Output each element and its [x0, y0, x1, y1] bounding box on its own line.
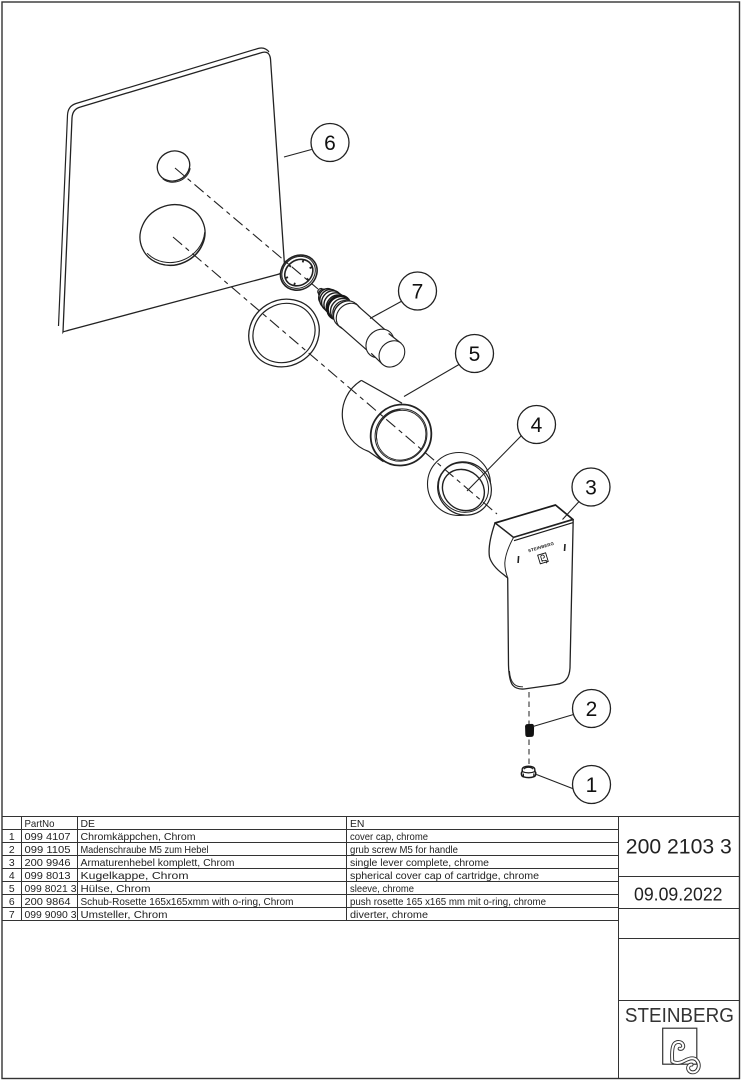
svg-text:EN: EN [350, 819, 364, 830]
svg-text:099 8013: 099 8013 [25, 871, 71, 882]
svg-text:4: 4 [9, 871, 15, 882]
svg-text:Hülse, Chrom: Hülse, Chrom [81, 884, 151, 895]
svg-text:grub screw M5 for handle: grub screw M5 for handle [350, 845, 458, 856]
svg-text:6: 6 [9, 897, 15, 908]
svg-text:1: 1 [586, 774, 598, 797]
svg-text:3: 3 [9, 858, 15, 869]
svg-text:7: 7 [412, 281, 424, 304]
svg-text:099 1105: 099 1105 [25, 845, 71, 856]
svg-text:3: 3 [585, 477, 597, 500]
svg-text:5: 5 [9, 884, 15, 895]
svg-text:09.09.2022: 09.09.2022 [634, 883, 723, 904]
svg-text:STEINBERG: STEINBERG [625, 1005, 734, 1027]
svg-text:Schub-Rosette 165x165xmm with: Schub-Rosette 165x165xmm with o-ring, Ch… [81, 897, 294, 908]
svg-text:PartNo: PartNo [25, 819, 55, 830]
svg-text:Umsteller, Chrom: Umsteller, Chrom [81, 910, 168, 921]
svg-text:push rosette 165 x165 mm mit o: push rosette 165 x165 mm mit o-ring, chr… [350, 897, 546, 908]
svg-text:5: 5 [469, 343, 481, 366]
svg-text:4: 4 [531, 414, 543, 437]
svg-text:200 9946: 200 9946 [25, 858, 71, 869]
svg-text:spherical cover cap of cartrid: spherical cover cap of cartridge, chrome [350, 871, 539, 882]
svg-text:Chromkäppchen, Chrom: Chromkäppchen, Chrom [81, 832, 196, 843]
svg-text:099 8021 3: 099 8021 3 [25, 884, 77, 895]
svg-text:DE: DE [81, 819, 96, 830]
svg-text:1: 1 [9, 832, 15, 843]
svg-text:200 9864: 200 9864 [25, 897, 71, 908]
svg-text:099 9090 3: 099 9090 3 [25, 910, 77, 921]
svg-text:Kugelkappe, Chrom: Kugelkappe, Chrom [81, 871, 189, 882]
svg-text:2: 2 [9, 845, 15, 856]
svg-text:Madenschraube M5 zum Hebel: Madenschraube M5 zum Hebel [81, 845, 209, 856]
svg-text:2: 2 [586, 698, 598, 721]
svg-text:200 2103 3: 200 2103 3 [626, 835, 732, 859]
svg-text:diverter, chrome: diverter, chrome [350, 910, 428, 921]
svg-text:single lever complete, chrome: single lever complete, chrome [350, 858, 489, 869]
svg-text:6: 6 [324, 132, 336, 155]
svg-text:cover cap, chrome: cover cap, chrome [350, 832, 428, 843]
svg-text:099 4107: 099 4107 [25, 832, 71, 843]
svg-text:Armaturenhebel komplett, Chrom: Armaturenhebel komplett, Chrom [81, 858, 235, 869]
svg-text:7: 7 [9, 910, 15, 921]
svg-text:sleeve, chrome: sleeve, chrome [350, 884, 414, 895]
